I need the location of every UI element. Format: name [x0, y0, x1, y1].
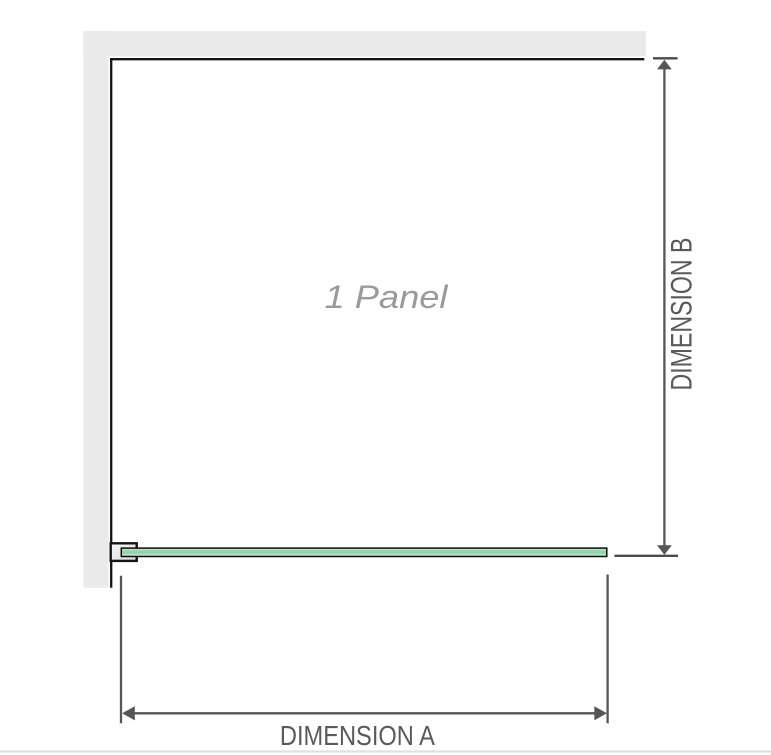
svg-text:DIMENSION A: DIMENSION A	[280, 720, 435, 751]
svg-text:DIMENSION B: DIMENSION B	[666, 238, 699, 391]
svg-text:1 Panel: 1 Panel	[325, 279, 449, 315]
